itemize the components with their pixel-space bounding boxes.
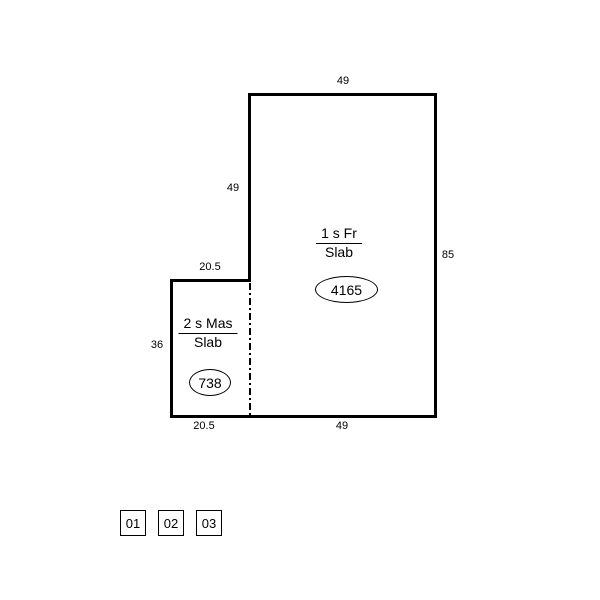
page-button-02[interactable]: 02	[158, 510, 184, 536]
section-divider-line	[249, 283, 251, 415]
dim-building2-top: 20.5	[199, 261, 220, 274]
building2-area-bubble: 738	[189, 369, 231, 396]
dim-building1-bottom: 49	[336, 420, 348, 433]
page-button-01[interactable]: 01	[120, 510, 146, 536]
building2-top-edge	[170, 279, 251, 282]
dim-building2-bottom: 20.5	[193, 420, 214, 433]
building1-story-label: 1 s Fr	[316, 225, 362, 244]
building1-area-bubble: 4165	[315, 276, 378, 303]
building1-label: 1 s Fr Slab	[316, 225, 362, 261]
dim-building2-left: 36	[151, 339, 163, 352]
building2-story-label: 2 s Mas	[178, 315, 237, 334]
building-bottom-edge	[170, 415, 437, 418]
building2-foundation-label: Slab	[178, 334, 237, 351]
sketch-canvas: 49 49 85 49 20.5 36 20.5 1 s Fr Slab 416…	[0, 0, 600, 600]
building1-left-edge	[248, 93, 251, 282]
dim-building1-right: 85	[442, 249, 454, 262]
dim-building1-left: 49	[227, 182, 239, 195]
building2-label: 2 s Mas Slab	[178, 315, 237, 351]
page-button-03[interactable]: 03	[196, 510, 222, 536]
building1-top-edge	[248, 93, 437, 96]
building1-right-edge	[434, 93, 437, 418]
building1-foundation-label: Slab	[316, 244, 362, 261]
building2-left-edge	[170, 279, 173, 418]
dim-building1-top: 49	[337, 75, 349, 88]
